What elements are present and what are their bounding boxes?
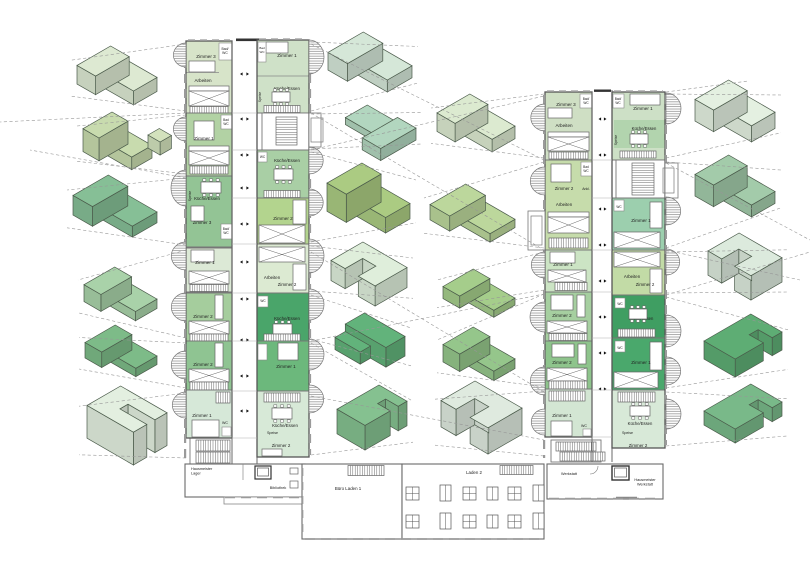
svg-text:Speise: Speise xyxy=(258,92,262,102)
svg-text:Küche/Essen: Küche/Essen xyxy=(274,158,300,163)
svg-text:WC: WC xyxy=(615,101,621,105)
svg-text:Hausmeister: Hausmeister xyxy=(634,478,656,482)
svg-text:Zimmer 2: Zimmer 2 xyxy=(193,362,213,367)
svg-text:WC: WC xyxy=(617,346,623,350)
svg-text:Lager: Lager xyxy=(191,472,201,476)
svg-text:Zimmer 1: Zimmer 1 xyxy=(553,262,573,267)
svg-text:Zimmer 1: Zimmer 1 xyxy=(552,413,572,418)
svg-text:Zimmer 3: Zimmer 3 xyxy=(556,102,576,107)
svg-text:WC: WC xyxy=(260,299,266,303)
svg-text:Laden 2: Laden 2 xyxy=(466,470,482,475)
svg-text:Ankl.: Ankl. xyxy=(582,187,590,191)
svg-text:Küche/Essen: Küche/Essen xyxy=(274,316,300,321)
svg-text:WC: WC xyxy=(617,302,623,306)
svg-text:Hausmeister: Hausmeister xyxy=(191,467,213,471)
svg-text:Zimmer 2: Zimmer 2 xyxy=(552,313,572,318)
svg-text:Zimmer 2: Zimmer 2 xyxy=(629,443,648,448)
svg-text:Zimmer 1: Zimmer 1 xyxy=(631,218,651,223)
svg-text:Arbeiten: Arbeiten xyxy=(264,275,281,280)
svg-text:Arbeiten: Arbeiten xyxy=(624,274,641,279)
svg-text:Zimmer 2: Zimmer 2 xyxy=(555,186,574,191)
svg-text:Büro Laden 1: Büro Laden 1 xyxy=(335,486,362,491)
svg-text:Zimmer 2: Zimmer 2 xyxy=(278,282,297,287)
svg-text:Zimmer 2: Zimmer 2 xyxy=(552,360,572,365)
svg-text:WC: WC xyxy=(581,424,587,428)
svg-text:WC: WC xyxy=(583,101,589,105)
svg-text:WC: WC xyxy=(616,205,622,209)
svg-text:Zimmer 1: Zimmer 1 xyxy=(276,364,296,369)
svg-text:WC: WC xyxy=(260,155,266,159)
svg-text:Zimmer 2: Zimmer 2 xyxy=(193,314,213,319)
svg-text:Zimmer 1: Zimmer 1 xyxy=(192,413,212,418)
svg-text:Arbeiten: Arbeiten xyxy=(556,202,573,207)
svg-text:Zimmer 2: Zimmer 2 xyxy=(273,216,293,221)
svg-text:Küche/Essen: Küche/Essen xyxy=(272,423,298,428)
svg-text:Speise: Speise xyxy=(622,431,633,435)
svg-text:WC: WC xyxy=(223,231,229,235)
svg-text:Werkstatt: Werkstatt xyxy=(637,483,654,487)
svg-text:Zimmer 3: Zimmer 3 xyxy=(196,54,216,59)
svg-text:Küche/Essen: Küche/Essen xyxy=(628,421,653,426)
svg-text:Speise: Speise xyxy=(188,191,192,201)
svg-text:Werkstatt: Werkstatt xyxy=(561,472,578,476)
svg-text:WC: WC xyxy=(223,122,229,126)
svg-text:WC: WC xyxy=(222,51,228,55)
svg-text:WC: WC xyxy=(222,421,228,425)
svg-text:Zimmer 2: Zimmer 2 xyxy=(272,443,291,448)
svg-text:Zimmer 1: Zimmer 1 xyxy=(195,260,215,265)
svg-text:Zimmer 1: Zimmer 1 xyxy=(633,106,653,111)
svg-text:Arbeiten: Arbeiten xyxy=(555,123,573,128)
svg-text:Speise: Speise xyxy=(267,431,278,435)
svg-text:Speise: Speise xyxy=(614,135,618,145)
svg-text:WC: WC xyxy=(583,169,589,173)
svg-text:Bibliothek: Bibliothek xyxy=(270,486,287,490)
svg-text:Arbeiten: Arbeiten xyxy=(194,78,212,83)
svg-text:WC: WC xyxy=(260,50,266,54)
svg-text:Zimmer 2: Zimmer 2 xyxy=(636,282,655,287)
svg-text:Zimmer 1: Zimmer 1 xyxy=(631,360,651,365)
svg-text:Küche/Essen: Küche/Essen xyxy=(632,126,657,131)
svg-text:Küche/Essen: Küche/Essen xyxy=(194,196,220,201)
svg-text:Zimmer 1: Zimmer 1 xyxy=(277,53,297,58)
svg-text:Zimmer 1: Zimmer 1 xyxy=(194,136,214,141)
